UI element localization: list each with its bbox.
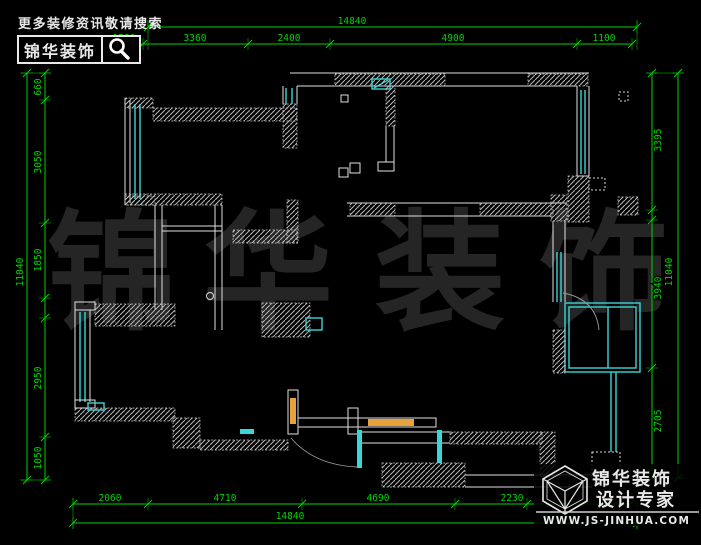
- footer-website: WWW.JS-JINHUA.COM: [543, 515, 690, 527]
- ceiling-symbol-1: [341, 95, 348, 102]
- dim-bottom-2: 4710: [214, 493, 237, 504]
- wall-bedroom-bottom: [125, 194, 222, 205]
- dim-top-2: 3360: [184, 33, 207, 44]
- dim-left-4: 2950: [33, 366, 44, 389]
- dim-left-3: 1850: [33, 248, 44, 271]
- svg-text:装: 装: [375, 196, 505, 349]
- door-leaf-2: [437, 430, 442, 463]
- dim-right-total: 11040: [664, 257, 675, 286]
- dim-bottom-3: 4690: [367, 493, 390, 504]
- dim-left-2: 3050: [33, 150, 44, 173]
- ceiling-symbol-2: [339, 168, 348, 177]
- dim-top-4: 4900: [442, 33, 465, 44]
- dim-top-3: 2400: [278, 33, 301, 44]
- dim-bottom-total: 14840: [276, 511, 305, 522]
- brand-name: 锦华装饰: [24, 42, 96, 61]
- footer-brand-2: 设计专家: [596, 489, 676, 511]
- entry-door-leaf: [357, 430, 362, 468]
- cabinet-orange-2: [368, 419, 414, 426]
- dim-right-2: 3940: [653, 276, 664, 299]
- dim-right-3: 2705: [653, 410, 664, 433]
- wall-top-left: [153, 108, 297, 121]
- wall-stub-right: [618, 197, 638, 215]
- cabinet-orange-1: [290, 398, 296, 424]
- footer-brand-1: 锦华装饰: [592, 468, 672, 490]
- dim-left-1: 660: [33, 78, 44, 95]
- dim-bottom-1: 2060: [99, 493, 122, 504]
- dim-bottom-4: 2230: [501, 493, 524, 504]
- floorplan-canvas: 锦 华 装 饰: [0, 0, 701, 545]
- dim-left-5: 1050: [33, 446, 44, 469]
- wall-top-hatch-2: [528, 74, 588, 86]
- cad-drawing: 锦 华 装 饰: [0, 0, 701, 545]
- footer-logo: 锦华装饰 设计专家 WWW.JS-JINHUA.COM: [534, 464, 701, 527]
- dim-left-total: 11040: [15, 257, 26, 286]
- header-tagline: 更多装修资讯敬请搜索: [18, 16, 163, 32]
- dim-top-5: 1100: [593, 33, 616, 44]
- dim-top-total: 14840: [338, 16, 367, 27]
- dim-right-1: 3395: [653, 129, 664, 152]
